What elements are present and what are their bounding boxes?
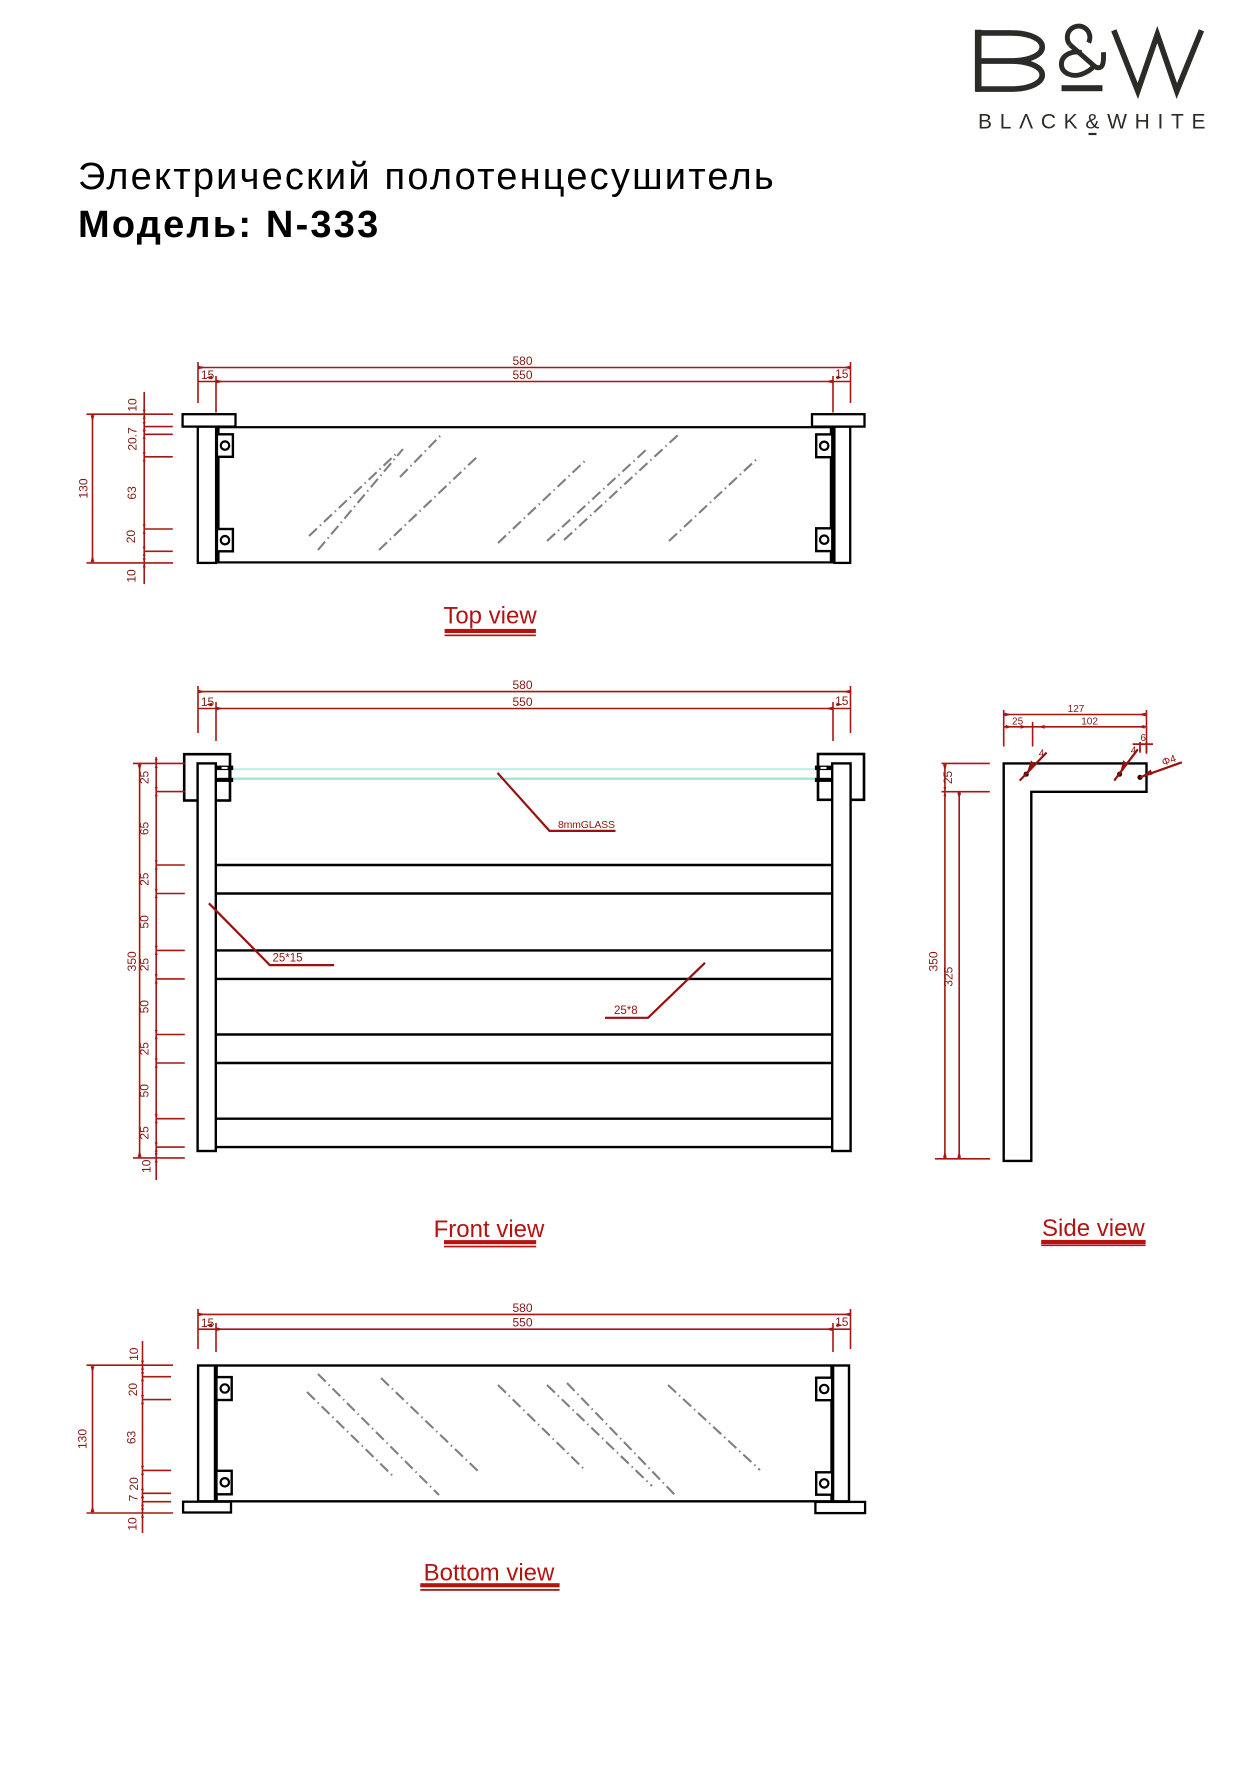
svg-text:7: 7	[127, 1494, 141, 1501]
svg-text:25: 25	[137, 958, 151, 972]
svg-text:25: 25	[137, 872, 151, 886]
svg-text:130: 130	[77, 478, 91, 498]
svg-text:25: 25	[137, 1126, 151, 1140]
svg-text:Top view: Top view	[443, 602, 537, 629]
svg-text:4: 4	[1131, 746, 1137, 757]
svg-text:63: 63	[125, 486, 139, 500]
svg-text:10: 10	[127, 1347, 141, 1361]
svg-text:25: 25	[941, 771, 955, 785]
svg-text:Bottom view: Bottom view	[424, 1560, 555, 1587]
svg-text:8mmGLASS: 8mmGLASS	[558, 819, 615, 831]
svg-text:15: 15	[835, 694, 849, 708]
svg-text:Φ4: Φ4	[1160, 753, 1178, 769]
svg-text:127: 127	[1068, 704, 1085, 715]
svg-text:130: 130	[75, 1429, 89, 1449]
svg-text:25: 25	[1012, 716, 1024, 727]
svg-text:580: 580	[512, 678, 532, 692]
svg-text:65: 65	[137, 822, 151, 836]
svg-text:350: 350	[125, 951, 139, 971]
svg-text:15: 15	[835, 367, 849, 381]
svg-text:550: 550	[512, 1316, 532, 1330]
svg-text:580: 580	[512, 1301, 532, 1315]
svg-text:325: 325	[942, 966, 956, 986]
svg-text:15: 15	[201, 368, 215, 382]
svg-text:25*8: 25*8	[614, 1005, 638, 1017]
svg-text:50: 50	[137, 1000, 151, 1014]
svg-text:10: 10	[125, 569, 139, 583]
svg-text:4: 4	[1039, 749, 1045, 760]
svg-text:20: 20	[127, 1477, 141, 1491]
svg-text:6: 6	[1140, 733, 1146, 744]
svg-text:25: 25	[137, 771, 151, 785]
svg-text:Side view: Side view	[1042, 1215, 1145, 1242]
svg-text:63: 63	[125, 1431, 139, 1445]
svg-text:15: 15	[201, 1316, 215, 1330]
svg-text:Front view: Front view	[434, 1216, 545, 1243]
svg-text:15: 15	[201, 695, 215, 709]
svg-text:25*15: 25*15	[273, 953, 303, 965]
svg-text:25: 25	[137, 1042, 151, 1056]
svg-text:20: 20	[126, 1383, 140, 1397]
svg-text:580: 580	[512, 354, 532, 368]
svg-text:102: 102	[1081, 716, 1098, 727]
svg-text:550: 550	[512, 695, 532, 709]
svg-text:15: 15	[835, 1315, 849, 1329]
svg-text:50: 50	[137, 1084, 151, 1098]
svg-text:10: 10	[126, 398, 140, 412]
svg-text:50: 50	[137, 915, 151, 929]
svg-text:10: 10	[140, 1159, 154, 1173]
svg-text:350: 350	[927, 951, 941, 971]
svg-text:20: 20	[124, 530, 138, 544]
svg-text:10: 10	[125, 1517, 139, 1531]
svg-text:550: 550	[512, 368, 532, 382]
svg-text:20.7: 20.7	[126, 427, 140, 451]
